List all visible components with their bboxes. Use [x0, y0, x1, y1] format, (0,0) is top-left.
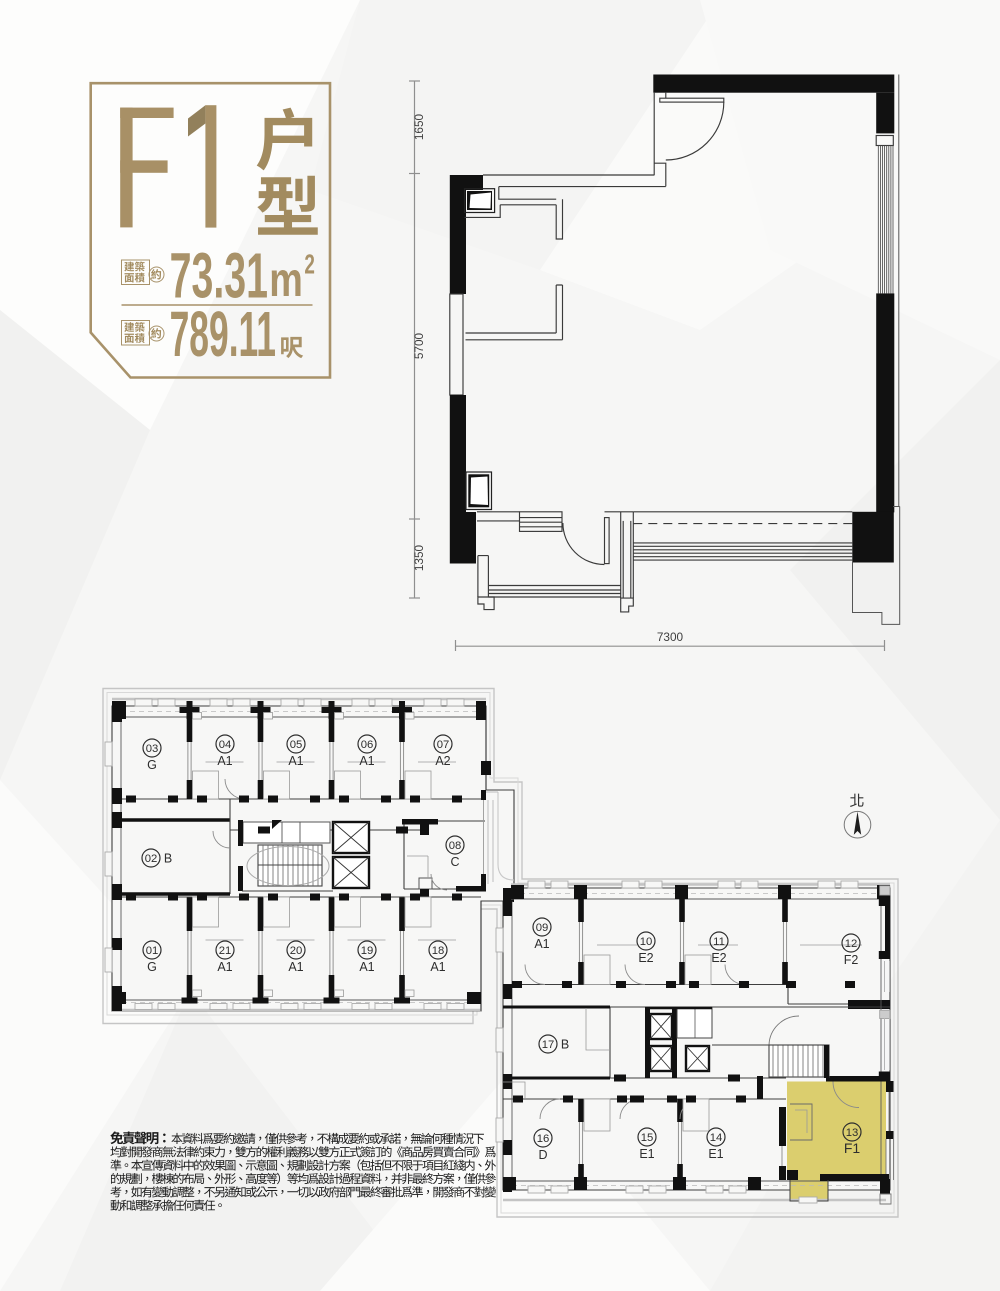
- svg-text:11: 11: [713, 936, 725, 948]
- svg-text:19: 19: [361, 945, 374, 957]
- svg-text:13: 13: [846, 1127, 859, 1139]
- svg-text:F1: F1: [844, 1140, 861, 1156]
- svg-text:20: 20: [290, 945, 303, 957]
- svg-text:G: G: [147, 758, 157, 772]
- svg-text:15: 15: [641, 1132, 654, 1144]
- svg-text:05: 05: [290, 739, 303, 751]
- svg-text:17: 17: [542, 1039, 555, 1051]
- svg-text:G: G: [147, 960, 157, 974]
- svg-text:E2: E2: [711, 951, 726, 965]
- svg-text:1350: 1350: [412, 544, 426, 571]
- svg-text:01: 01: [146, 945, 159, 957]
- svg-text:A1: A1: [217, 754, 232, 768]
- svg-text:08: 08: [449, 840, 462, 852]
- svg-text:5700: 5700: [412, 332, 426, 359]
- svg-text:A1: A1: [288, 754, 303, 768]
- svg-text:2: 2: [304, 248, 315, 279]
- svg-text:7300: 7300: [657, 630, 684, 644]
- svg-text:F2: F2: [844, 953, 859, 967]
- svg-text:04: 04: [219, 739, 232, 751]
- svg-text:02: 02: [145, 853, 158, 865]
- svg-text:09: 09: [536, 922, 549, 934]
- svg-text:A1: A1: [288, 960, 303, 974]
- svg-text:16: 16: [537, 1133, 550, 1145]
- svg-text:A1: A1: [217, 960, 232, 974]
- svg-text:A2: A2: [435, 754, 450, 768]
- svg-text:1650: 1650: [412, 113, 426, 140]
- svg-text:C: C: [450, 855, 459, 869]
- svg-text:14: 14: [710, 1132, 723, 1144]
- svg-text:B: B: [561, 1038, 569, 1052]
- svg-text:E2: E2: [638, 951, 653, 965]
- svg-text:10: 10: [640, 936, 653, 948]
- svg-text:A1: A1: [534, 937, 549, 951]
- svg-text:A1: A1: [359, 754, 374, 768]
- svg-text:07: 07: [437, 739, 450, 751]
- svg-text:B: B: [164, 852, 172, 866]
- svg-text:789.11: 789.11: [170, 298, 276, 370]
- svg-text:06: 06: [361, 739, 374, 751]
- svg-text:E1: E1: [639, 1147, 654, 1161]
- svg-text:12: 12: [845, 938, 858, 950]
- svg-text:03: 03: [146, 743, 159, 755]
- svg-text:18: 18: [432, 945, 445, 957]
- svg-text:A1: A1: [359, 960, 374, 974]
- svg-text:A1: A1: [430, 960, 445, 974]
- svg-text:21: 21: [219, 945, 232, 957]
- svg-text:D: D: [538, 1148, 547, 1162]
- svg-text:E1: E1: [708, 1147, 723, 1161]
